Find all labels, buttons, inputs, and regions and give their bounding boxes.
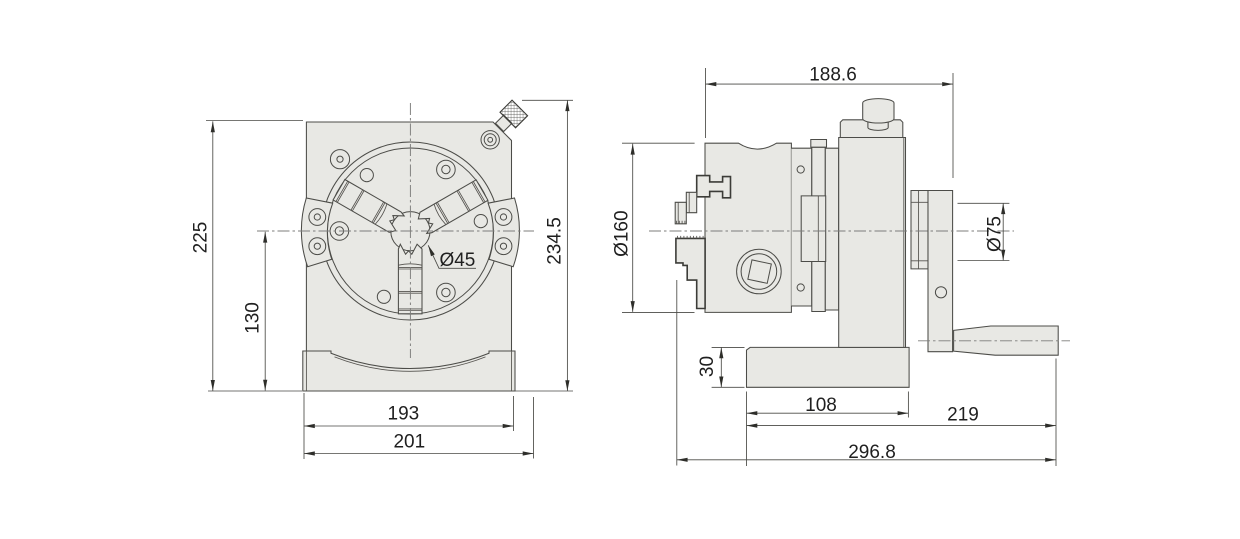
svg-text:201: 201 [393, 432, 425, 453]
svg-text:Ø45: Ø45 [439, 250, 475, 271]
svg-text:188.6: 188.6 [809, 65, 857, 86]
svg-text:Ø75: Ø75 [985, 216, 1006, 252]
svg-text:30: 30 [697, 356, 718, 377]
svg-text:108: 108 [805, 395, 837, 416]
svg-text:193: 193 [388, 404, 420, 425]
svg-text:219: 219 [947, 405, 979, 426]
svg-text:296.8: 296.8 [848, 442, 896, 463]
svg-text:130: 130 [243, 302, 264, 334]
svg-text:234.5: 234.5 [545, 217, 566, 265]
svg-text:225: 225 [191, 222, 212, 254]
svg-text:Ø160: Ø160 [612, 210, 633, 256]
